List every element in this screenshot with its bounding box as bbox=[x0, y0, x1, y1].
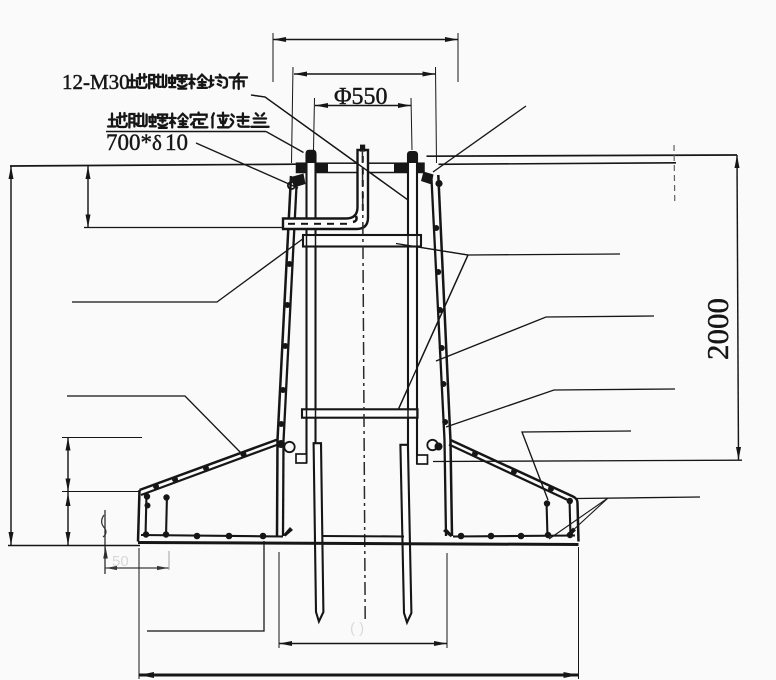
svg-text:10: 10 bbox=[165, 130, 188, 155]
svg-text:700*: 700* bbox=[106, 130, 152, 155]
svg-text:2000: 2000 bbox=[700, 298, 735, 360]
svg-text:δ: δ bbox=[152, 131, 162, 155]
svg-text:( ): ( ) bbox=[350, 620, 364, 637]
svg-text:50: 50 bbox=[112, 553, 129, 570]
svg-text:12-M30: 12-M30 bbox=[62, 70, 130, 94]
